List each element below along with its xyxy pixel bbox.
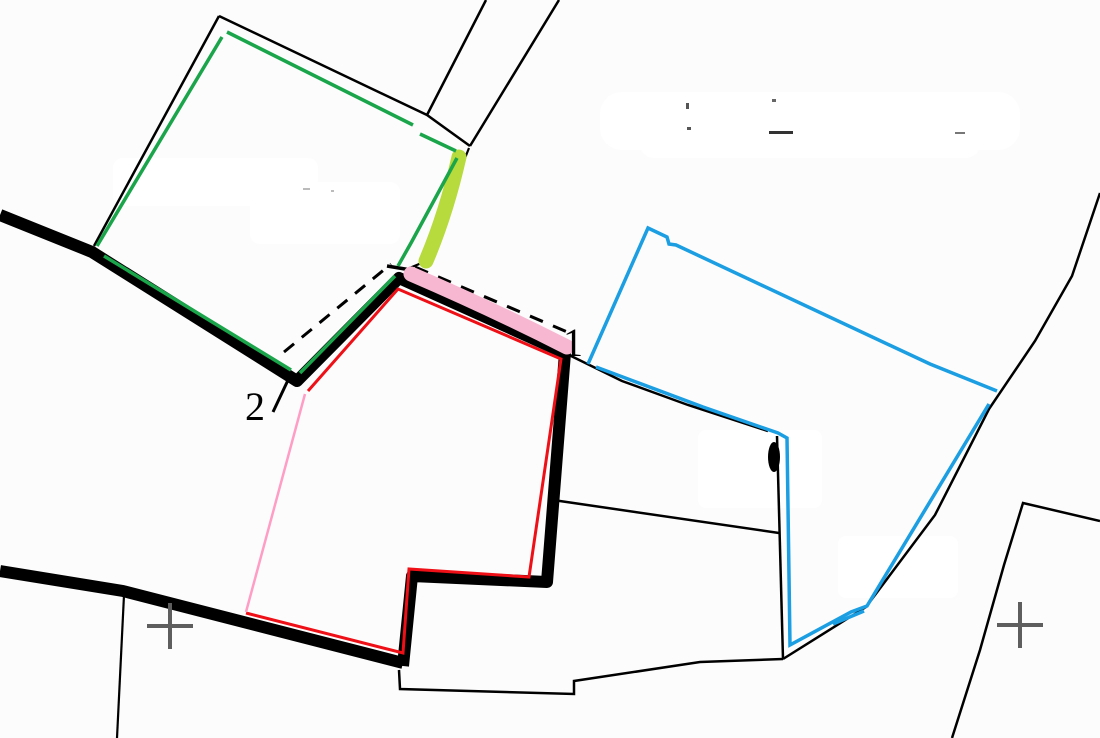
erased-smudge-5: [698, 430, 822, 508]
green-parcel-southeast: [300, 276, 395, 373]
ink-speck-3: [687, 127, 691, 130]
highlight-pink-stroke: [411, 274, 567, 347]
grid-cross-east: [997, 602, 1043, 648]
ink-speck-1: [686, 103, 689, 109]
green-parcel-top: [227, 32, 413, 125]
lane-boundary-east: [470, 0, 559, 146]
ink-speck-4: [769, 131, 793, 134]
erased-smudge-4: [250, 182, 400, 244]
cadastral-map-page: 12: [0, 0, 1100, 738]
green-parcel-black-top-edge: [219, 16, 470, 146]
label-2-leader-line: [273, 378, 289, 412]
ink-speck-6: [303, 188, 310, 190]
boundary-v-line-southeast: [952, 503, 1100, 738]
tree-blob-mark: [768, 442, 780, 472]
green-parcel-top-right: [420, 134, 456, 151]
green-parcel-black-left-edge: [94, 16, 219, 246]
green-parcel-left: [97, 37, 222, 246]
green-parcel-bottom: [104, 256, 291, 370]
ink-speck-5: [955, 132, 965, 134]
erased-smudge-2: [640, 128, 980, 158]
point-label-1: 1: [563, 320, 583, 365]
boundary-bottom: [399, 659, 783, 694]
road-thick-south: [0, 571, 403, 663]
boundary-thin-vertical-left: [117, 595, 124, 738]
ink-speck-7: [331, 190, 334, 192]
blue-parcel-north-edge: [588, 228, 997, 391]
road-thick-main: [0, 215, 565, 666]
lane-boundary-west: [427, 0, 486, 115]
ink-speck-2: [772, 99, 776, 102]
parcel-map-svg: 12: [0, 0, 1100, 738]
erased-smudge-6: [838, 536, 958, 598]
point-label-2: 2: [245, 384, 265, 429]
